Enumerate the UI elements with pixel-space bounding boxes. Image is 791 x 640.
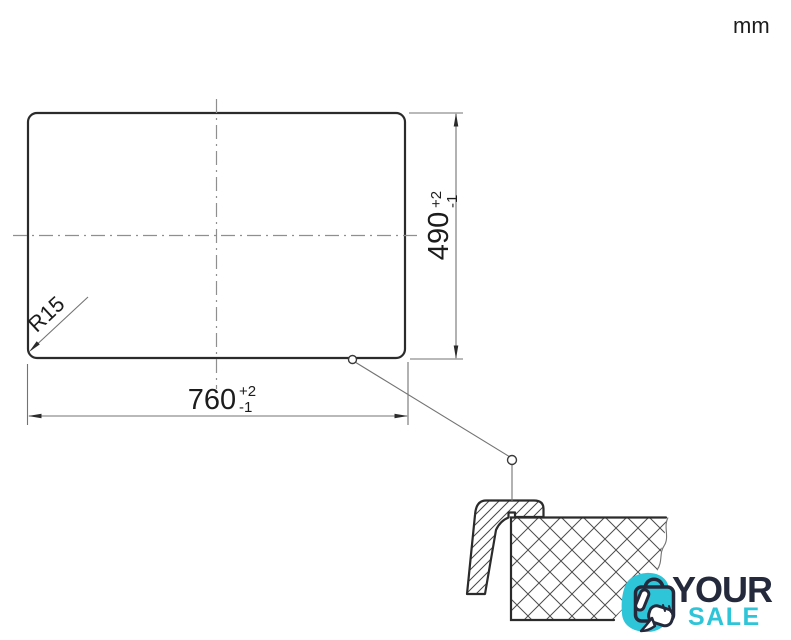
cutout-plan-view	[13, 99, 421, 389]
arrowhead-left	[28, 414, 42, 419]
width-dimension-value: 760	[188, 384, 236, 416]
detail-leader	[349, 356, 517, 503]
height-dimension-tol-plus: +2	[428, 191, 445, 208]
height-dimension-tol-minus: -1	[444, 195, 461, 208]
arrowhead-right	[395, 414, 409, 419]
width-dimension-tol-plus: +2	[239, 383, 256, 400]
brand-logo: YOUR SALE	[622, 569, 773, 632]
height-dimension: 490 +2 -1	[409, 113, 463, 359]
detail-marker-section	[508, 456, 517, 465]
width-dimension: 760 +2 -1	[28, 362, 409, 425]
width-dimension-tol-minus: -1	[239, 399, 252, 416]
arrowhead-down	[454, 346, 459, 360]
logo-word-bottom: SALE	[688, 603, 761, 631]
unit-label: mm	[733, 13, 770, 38]
leader-diagonal	[355, 362, 510, 457]
height-dimension-value: 490	[423, 212, 455, 260]
detail-marker-plan	[349, 356, 357, 364]
arrowhead-up	[454, 113, 459, 127]
technical-drawing-canvas: mm 490 +2 -1 760 +2 -1 R15	[0, 0, 791, 640]
